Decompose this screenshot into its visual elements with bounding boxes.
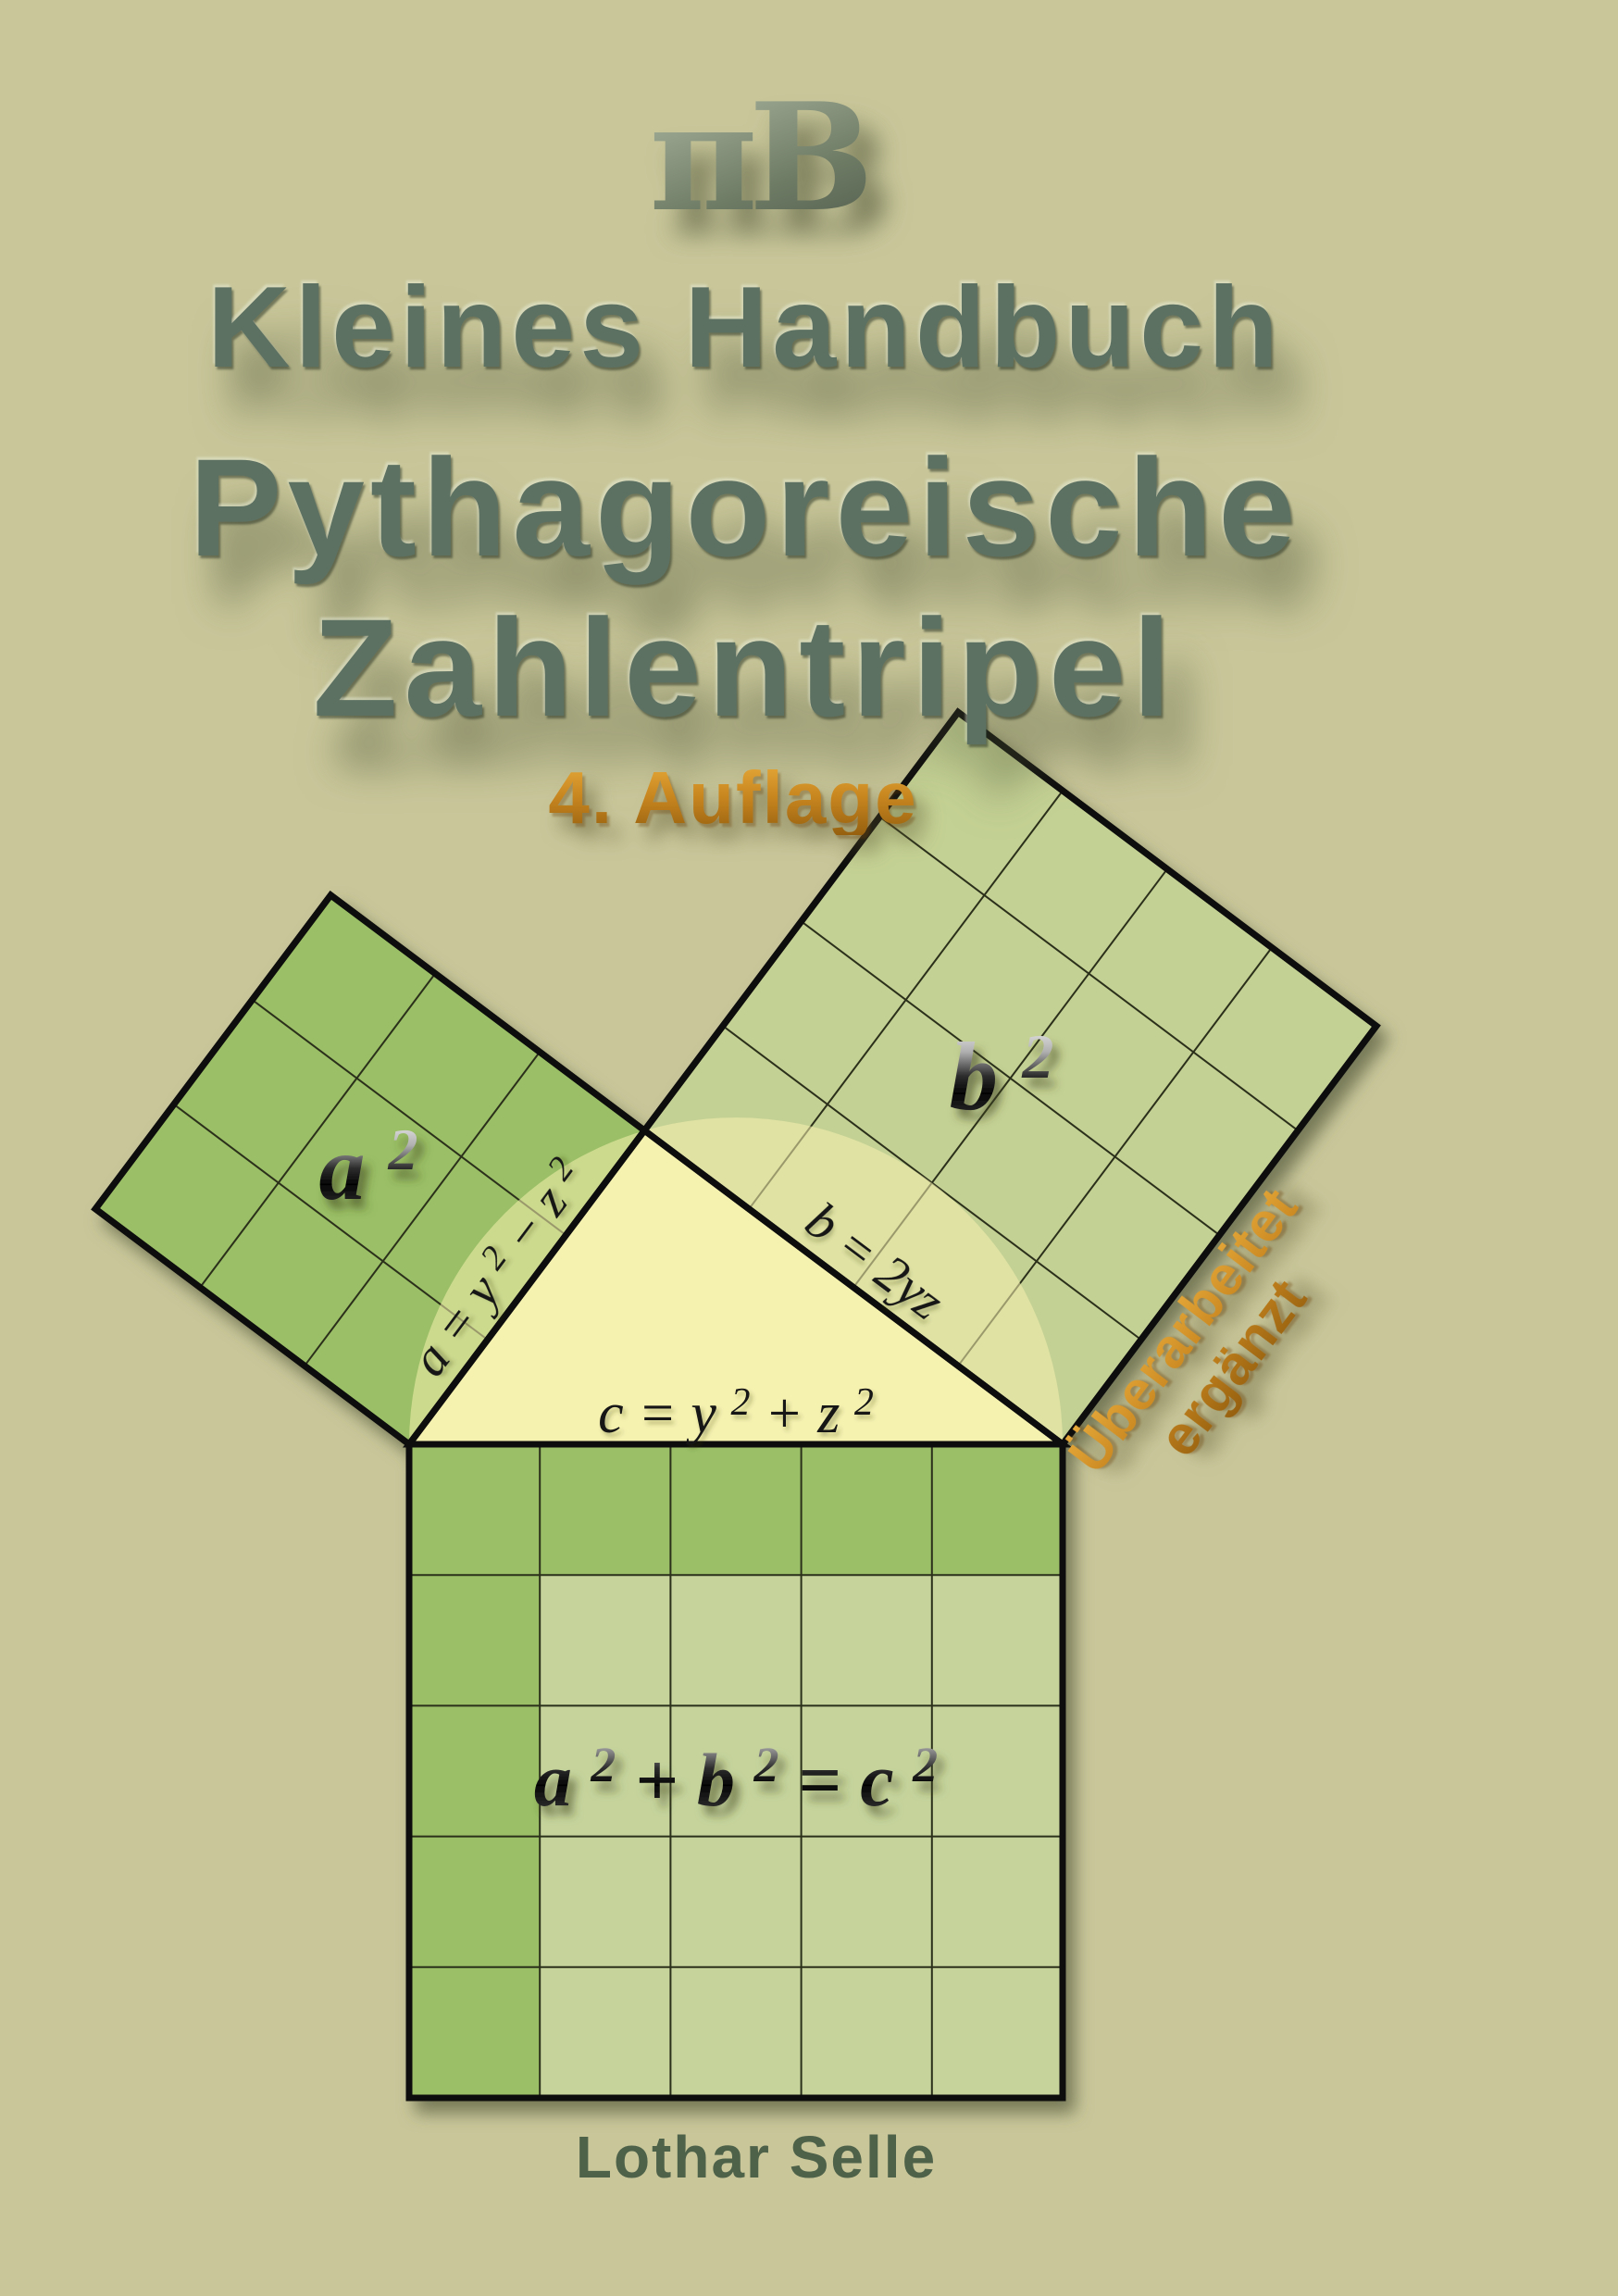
equation-part-4: = c	[798, 1738, 894, 1822]
hyp-part-1: 2	[730, 1381, 750, 1424]
dark-row	[409, 1444, 1063, 1575]
hyp-part-2: + z	[765, 1382, 840, 1445]
title-line-2: Pythagoreische	[0, 438, 1490, 577]
square-a-label-sup: 2	[388, 1117, 418, 1182]
equation-part-2: + b	[635, 1738, 735, 1822]
equation-part-5: 2	[912, 1737, 938, 1792]
square-a-label-base: a	[319, 1117, 366, 1219]
hyp-part-3: 2	[854, 1381, 874, 1424]
hyp-part-0: c = y	[598, 1382, 716, 1445]
title-line-1: Kleines Handbuch	[0, 270, 1490, 385]
edition-label: 4. Auflage	[0, 761, 1466, 835]
equation-part-0: a	[534, 1738, 572, 1822]
publisher-logo: πB	[0, 83, 1514, 231]
square-b-label-sup: 2	[1021, 1021, 1053, 1092]
square-b-label-base: b	[950, 1022, 999, 1130]
equation-part-3: 2	[753, 1737, 779, 1792]
author-name: Lothar Selle	[0, 2128, 1512, 2187]
book-cover: a 2 b 2 a 2 + b 2 = c 2 a = y 2 − z 2 b …	[0, 0, 1618, 2296]
title-line-3: Zahlentripel	[0, 598, 1490, 737]
equation-part-1: 2	[590, 1737, 616, 1792]
